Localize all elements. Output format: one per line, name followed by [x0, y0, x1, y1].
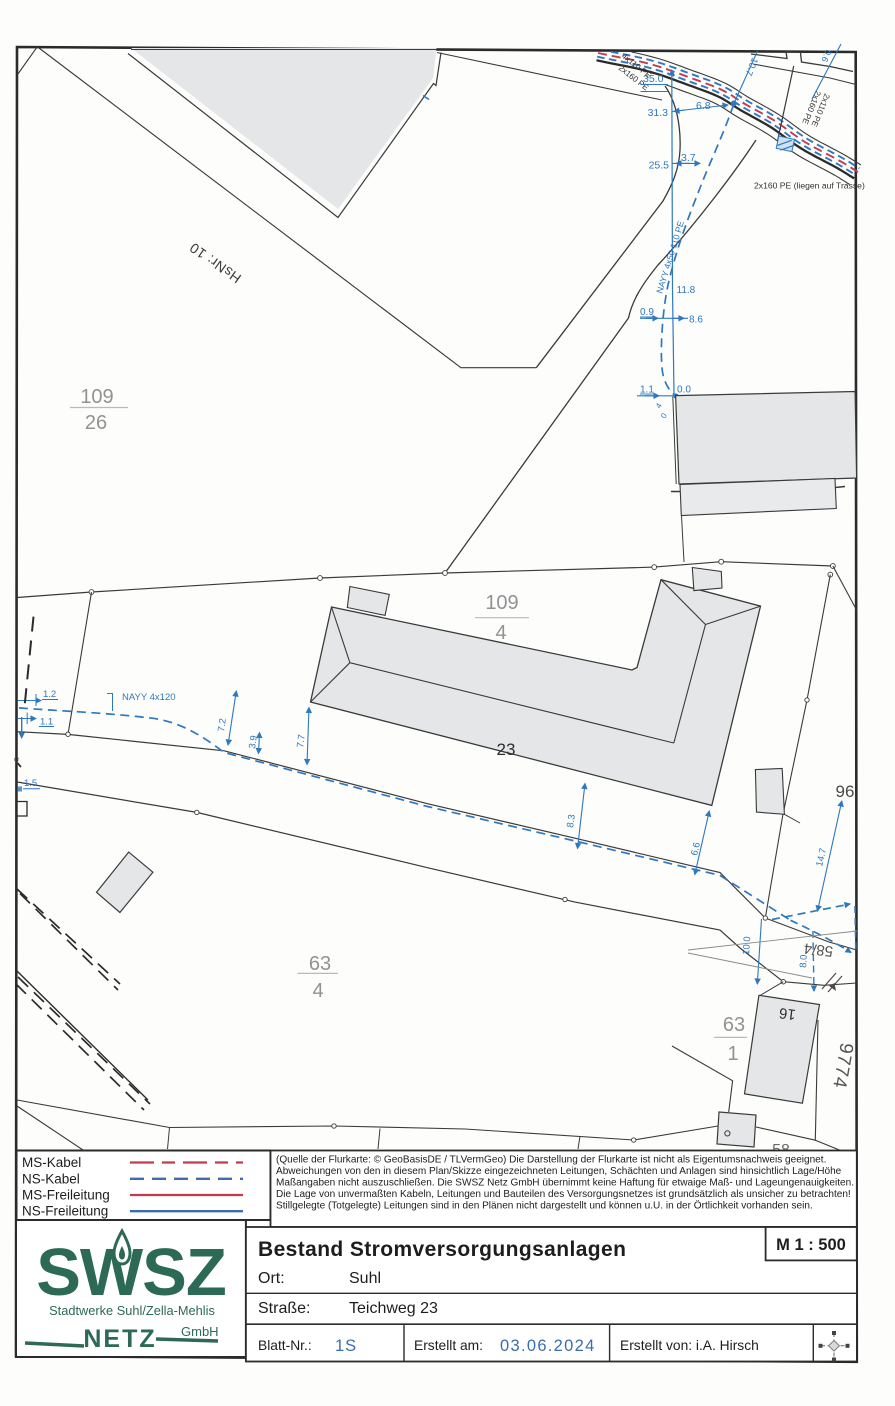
- svg-text:2x160 PE (liegen auf Trasse): 2x160 PE (liegen auf Trasse): [754, 181, 865, 191]
- svg-text:M 1 : 500: M 1 : 500: [776, 1236, 846, 1254]
- svg-text:4: 4: [495, 622, 506, 644]
- svg-text:4: 4: [654, 401, 664, 410]
- svg-text:109: 109: [80, 386, 113, 408]
- svg-text:14.7: 14.7: [814, 847, 829, 868]
- svg-text:35.0: 35.0: [643, 73, 664, 85]
- svg-text:Die Lage von unvermaßten Kabel: Die Lage von unvermaßten Kabeln, Leitung…: [276, 1189, 851, 1200]
- svg-text:SWSZ: SWSZ: [36, 1235, 226, 1310]
- svg-text:Maßangaben nicht auszuschließe: Maßangaben nicht auszuschließen. Die SWS…: [276, 1178, 854, 1189]
- svg-text:Erstellt am:: Erstellt am:: [414, 1338, 483, 1353]
- svg-text:31.3: 31.3: [648, 107, 669, 119]
- svg-text:7.7: 7.7: [295, 734, 308, 749]
- svg-text:3.7: 3.7: [681, 152, 696, 164]
- svg-text:63: 63: [309, 953, 331, 975]
- svg-text:26: 26: [85, 412, 107, 434]
- svg-text:Blatt-Nr.:: Blatt-Nr.:: [258, 1338, 312, 1353]
- svg-text:6.6: 6.6: [689, 841, 703, 856]
- svg-text:NAYY 4x120: NAYY 4x120: [122, 692, 176, 703]
- svg-text:MS-Kabel: MS-Kabel: [22, 1155, 81, 1170]
- svg-text:Stadtwerke Suhl/Zella-Mehlis: Stadtwerke Suhl/Zella-Mehlis: [49, 1303, 215, 1318]
- svg-text:8.6: 8.6: [689, 315, 703, 326]
- svg-text:(Quelle der Flurkarte: © GeoBa: (Quelle der Flurkarte: © GeoBasisDE / TL…: [276, 1155, 826, 1166]
- svg-text:10.7: 10.7: [743, 56, 760, 77]
- svg-text:8.3: 8.3: [565, 814, 578, 829]
- svg-text:0: 0: [659, 411, 669, 420]
- svg-text:109: 109: [485, 592, 518, 614]
- svg-text:Suhl: Suhl: [349, 1270, 381, 1287]
- svg-text:Ort:: Ort:: [258, 1270, 285, 1287]
- svg-text:23: 23: [497, 740, 516, 759]
- svg-text:1: 1: [727, 1043, 738, 1065]
- svg-text:03.06.2024: 03.06.2024: [500, 1337, 596, 1355]
- svg-text:63: 63: [723, 1014, 745, 1036]
- svg-text:NAYY 4x50 110 PE: NAYY 4x50 110 PE: [654, 220, 686, 295]
- svg-text:NETZ: NETZ: [83, 1325, 156, 1353]
- svg-text:11.8: 11.8: [677, 285, 696, 296]
- svg-text:3.9: 3.9: [247, 735, 260, 750]
- svg-text:MS-Freileitung: MS-Freileitung: [22, 1188, 110, 1203]
- svg-text:Bestand Stromversorgungsanlage: Bestand Stromversorgungsanlagen: [258, 1238, 626, 1261]
- svg-text:7.2: 7.2: [216, 718, 229, 733]
- svg-text:58/4: 58/4: [803, 939, 834, 959]
- svg-text:1S: 1S: [335, 1337, 357, 1355]
- svg-text:1.2: 1.2: [43, 689, 56, 700]
- svg-text:25.5: 25.5: [649, 160, 670, 172]
- svg-text:HsNr: 10: HsNr: 10: [186, 240, 244, 287]
- svg-text:6.8: 6.8: [696, 100, 711, 112]
- svg-text:4: 4: [312, 980, 323, 1002]
- svg-text:Teichweg 23: Teichweg 23: [349, 1300, 438, 1317]
- svg-text:Abweichungen von den in diesem: Abweichungen von den in diesem Plan/Skiz…: [276, 1166, 842, 1177]
- svg-text:9774: 9774: [828, 1041, 857, 1090]
- svg-text:GmbH: GmbH: [181, 1324, 219, 1339]
- svg-text:Stillgelegte (Totgelegte) Leit: Stillgelegte (Totgelegte) Leitungen sind…: [276, 1200, 813, 1212]
- svg-text:0.9: 0.9: [640, 307, 654, 318]
- svg-text:10.0: 10.0: [741, 936, 753, 955]
- svg-text:Erstellt von: i.A. Hirsch: Erstellt von: i.A. Hirsch: [620, 1338, 759, 1353]
- svg-text:0.0: 0.0: [677, 385, 691, 396]
- svg-text:1.5: 1.5: [24, 778, 37, 789]
- svg-text:NS-Kabel: NS-Kabel: [22, 1172, 80, 1187]
- svg-text:96: 96: [836, 782, 855, 801]
- svg-text:NS-Freileitung: NS-Freileitung: [22, 1204, 108, 1219]
- svg-text:Straße:: Straße:: [258, 1300, 310, 1317]
- svg-text:1.1: 1.1: [40, 717, 53, 728]
- svg-text:16: 16: [778, 1004, 797, 1023]
